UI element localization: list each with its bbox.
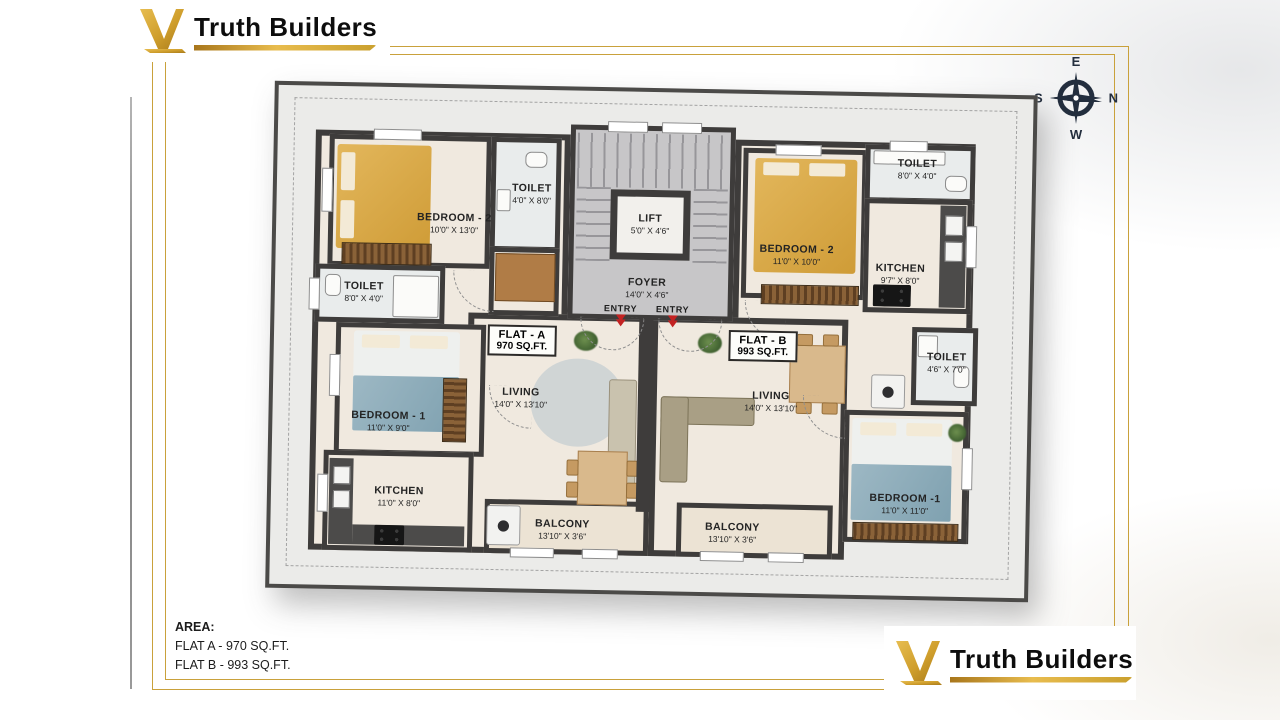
area-summary: AREA: FLAT A - 970 SQ.FT. FLAT B - 993 S… — [175, 618, 291, 674]
kitchen-counter — [352, 524, 464, 546]
flat-b-tag: FLAT - B993 SQ.FT. — [728, 330, 797, 362]
stove-hob — [374, 525, 404, 546]
stairs-left-flight — [575, 187, 610, 262]
kitchen-counter — [328, 458, 354, 544]
room-label-toilet-common-a: TOILET8'0" X 4'0" — [344, 280, 384, 304]
foyer-label: FOYER14'0" X 4'6" — [625, 276, 669, 300]
window — [582, 549, 618, 560]
room-label-kitchen-b: KITCHEN9'7" X 8'0" — [875, 262, 925, 286]
entry-left: ENTRY — [604, 303, 638, 327]
window — [961, 448, 973, 490]
room-label-toilet-attached-a: TOILET4'0" X 8'0" — [512, 182, 552, 206]
sofa — [659, 396, 689, 483]
window — [890, 141, 928, 153]
floor-plan: BEDROOM - 210'0" X 13'0" TOILET4'0" X 8'… — [265, 81, 1038, 603]
toilet-wc — [325, 274, 341, 296]
compass-rose-icon — [1040, 54, 1112, 142]
brand-underline — [194, 45, 377, 51]
compass: E N S W — [1040, 54, 1112, 142]
entry-right: ENTRY — [656, 304, 690, 328]
brand-v-icon — [138, 5, 188, 57]
brand-logo-bottom: Truth Builders — [884, 626, 1136, 700]
window — [965, 226, 977, 268]
wardrobe — [442, 378, 467, 442]
brand-name: Truth Builders — [950, 644, 1133, 675]
entry-arrow-icon — [615, 319, 625, 326]
toilet-wc — [945, 176, 967, 192]
stairs-upper-flight — [577, 133, 729, 190]
wardrobe — [852, 522, 958, 542]
room-label-living-b: LIVING14'0" X 13'10" — [744, 389, 797, 413]
window — [768, 552, 804, 563]
brand-logo-top: Truth Builders — [128, 0, 390, 62]
flat-a-tag: FLAT - A970 SQ.FT. — [487, 324, 556, 356]
area-flat-b: FLAT B - 993 SQ.FT. — [175, 656, 291, 675]
room-label-toilet-side-b: TOILET4'6" X 7'0" — [927, 351, 967, 375]
room-label-bedroom2-a: BEDROOM - 210'0" X 13'0" — [417, 211, 492, 235]
window — [700, 551, 744, 562]
window — [317, 474, 329, 512]
stairs-right-flight — [692, 189, 727, 264]
brand-name: Truth Builders — [194, 12, 377, 43]
shower-area — [392, 275, 439, 318]
wardrobe — [341, 242, 431, 266]
closet — [495, 253, 556, 302]
entry-arrow-icon — [667, 320, 677, 327]
window — [321, 168, 333, 212]
toilet-wc — [525, 152, 547, 168]
room-label-bedroom1-a: BEDROOM - 111'0" X 9'0" — [351, 409, 426, 433]
room-label-balcony-b: BALCONY13'10" X 3'6" — [705, 521, 760, 545]
lift-label: LIFT5'0" X 4'6" — [631, 212, 670, 236]
room-label-toilet-top-b: TOILET8'0" X 4'0" — [897, 157, 937, 181]
brand-underline — [950, 677, 1133, 683]
area-title: AREA: — [175, 618, 291, 637]
left-gray-rule — [130, 97, 132, 689]
dining-table — [577, 451, 628, 506]
washing-machine — [871, 374, 906, 409]
brand-v-icon — [894, 637, 944, 689]
window — [374, 129, 422, 141]
room-label-kitchen-a: KITCHEN11'0" X 8'0" — [374, 484, 424, 508]
room-label-bedroom1-b: BEDROOM -111'0" X 11'0" — [869, 492, 941, 516]
window — [608, 121, 648, 133]
window — [662, 122, 702, 134]
washing-machine — [486, 505, 521, 546]
window — [308, 277, 320, 309]
area-flat-a: FLAT A - 970 SQ.FT. — [175, 637, 291, 656]
room-label-bedroom2-b: BEDROOM - 211'0" X 10'0" — [759, 243, 834, 267]
room-label-living-a: LIVING14'0" X 13'10" — [494, 386, 547, 410]
toilet-sink — [496, 189, 510, 211]
window — [776, 144, 822, 156]
kitchen-counter — [939, 206, 967, 308]
window — [510, 547, 554, 558]
window — [329, 354, 341, 396]
room-label-balcony-a: BALCONY13'10" X 3'6" — [535, 517, 590, 541]
stove-hob — [873, 284, 911, 307]
